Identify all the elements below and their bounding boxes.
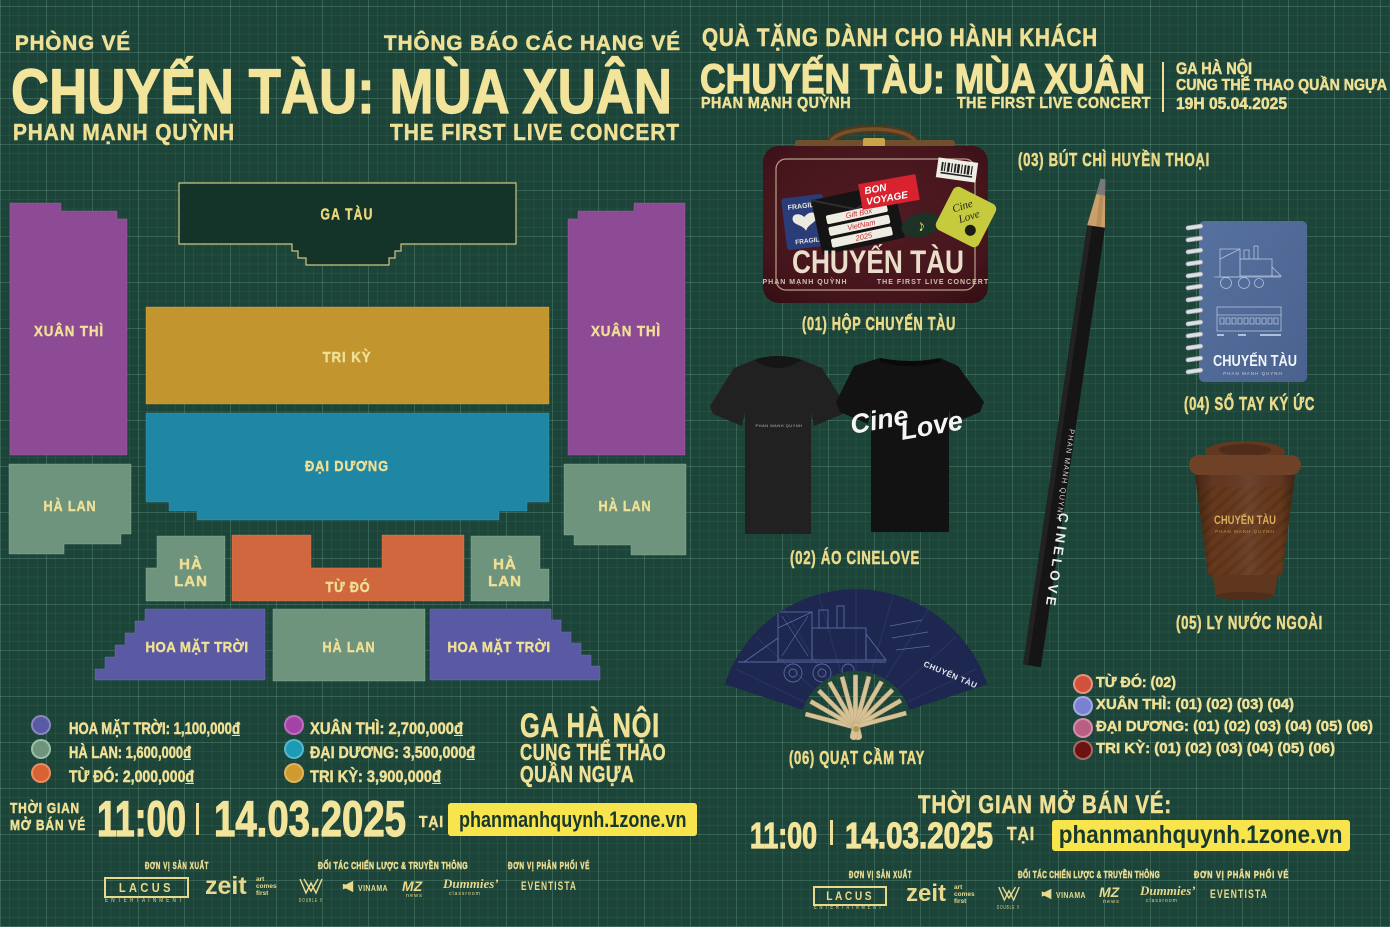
svg-text:LAN: LAN xyxy=(174,573,208,590)
svg-text:PHAN MANH QUYNH: PHAN MANH QUYNH xyxy=(1223,371,1283,376)
svg-text:LAN: LAN xyxy=(488,573,522,590)
svg-text:HÀ LAN: HÀ LAN xyxy=(599,498,652,515)
svg-text:CHUYẾN TÀU: CHUYẾN TÀU xyxy=(792,244,964,280)
svg-text:HÀ LAN: HÀ LAN xyxy=(44,498,97,515)
svg-text:HOA MẶT TRỜI: HOA MẶT TRỜI xyxy=(146,638,249,656)
svg-text:XUÂN THÌ: XUÂN THÌ xyxy=(591,322,661,340)
svg-text:PHAN MẠNH QUỲNH: PHAN MẠNH QUỲNH xyxy=(763,277,848,286)
svg-text:GA TÀU: GA TÀU xyxy=(321,207,374,224)
svg-text:PHAN MANH QUYNH: PHAN MANH QUYNH xyxy=(755,423,802,428)
svg-text:HÀ: HÀ xyxy=(179,556,203,573)
svg-text:TRI KỲ: TRI KỲ xyxy=(323,348,372,366)
svg-text:ĐẠI DƯƠNG: ĐẠI DƯƠNG xyxy=(305,458,389,475)
svg-text:CHUYẾN TÀU: CHUYẾN TÀU xyxy=(1213,351,1297,370)
svg-text:CHUYẾN TÀU: CHUYẾN TÀU xyxy=(1214,514,1276,527)
svg-text:HOA MẶT TRỜI: HOA MẶT TRỜI xyxy=(448,638,551,656)
svg-text:XUÂN THÌ: XUÂN THÌ xyxy=(34,322,104,340)
svg-text:THE FIRST LIVE CONCERT: THE FIRST LIVE CONCERT xyxy=(877,279,989,286)
svg-text:TỪ ĐÓ: TỪ ĐÓ xyxy=(326,578,371,596)
svg-text:HÀ LAN: HÀ LAN xyxy=(323,639,376,656)
svg-text:PHAN MANH QUYNH: PHAN MANH QUYNH xyxy=(1215,529,1275,534)
svg-text:HÀ: HÀ xyxy=(493,556,517,573)
